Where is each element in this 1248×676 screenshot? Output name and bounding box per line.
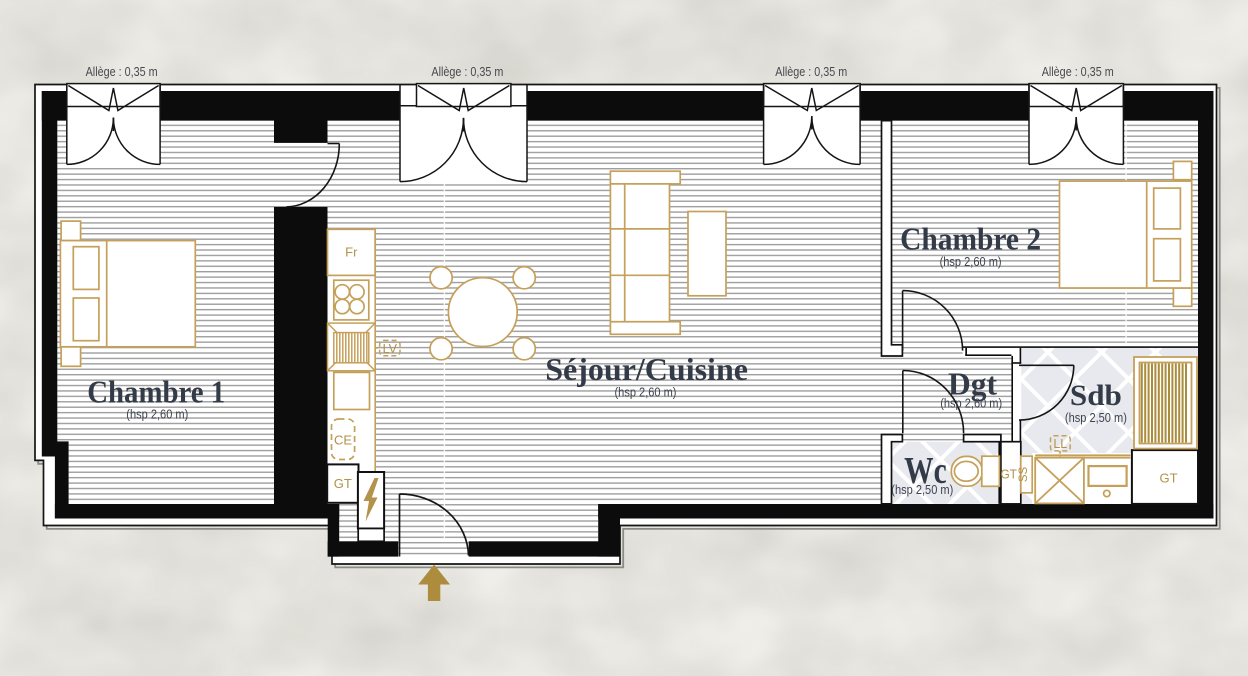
svg-text:SS: SS (1018, 467, 1030, 483)
svg-text:GT: GT (1159, 471, 1177, 486)
svg-text:Chambre 1: Chambre 1 (87, 373, 225, 409)
svg-text:(hsp 2,60 m): (hsp 2,60 m) (940, 254, 1002, 269)
svg-text:CE: CE (334, 433, 352, 448)
svg-text:Allège : 0,35 m: Allège : 0,35 m (86, 65, 158, 79)
svg-text:Séjour/Cuisine: Séjour/Cuisine (545, 351, 748, 387)
svg-text:Allège : 0,35 m: Allège : 0,35 m (1042, 65, 1114, 79)
svg-text:GT: GT (334, 476, 352, 491)
svg-text:(hsp 2,60 m): (hsp 2,60 m) (615, 384, 677, 399)
svg-text:(hsp 2,60 m): (hsp 2,60 m) (940, 395, 1002, 410)
svg-text:Allège : 0,35 m: Allège : 0,35 m (431, 65, 503, 79)
svg-text:Sdb: Sdb (1070, 379, 1122, 412)
svg-text:(hsp 2,50 m): (hsp 2,50 m) (1065, 410, 1127, 425)
svg-text:GT: GT (1000, 468, 1017, 482)
svg-text:Chambre 2: Chambre 2 (900, 220, 1041, 256)
svg-text:LV: LV (383, 342, 398, 356)
svg-text:LL: LL (1053, 437, 1067, 451)
svg-text:(hsp 2,60 m): (hsp 2,60 m) (126, 406, 188, 421)
svg-text:(hsp 2,50 m): (hsp 2,50 m) (891, 482, 953, 497)
svg-text:Allège : 0,35 m: Allège : 0,35 m (775, 65, 847, 79)
svg-text:Fr: Fr (345, 245, 358, 260)
